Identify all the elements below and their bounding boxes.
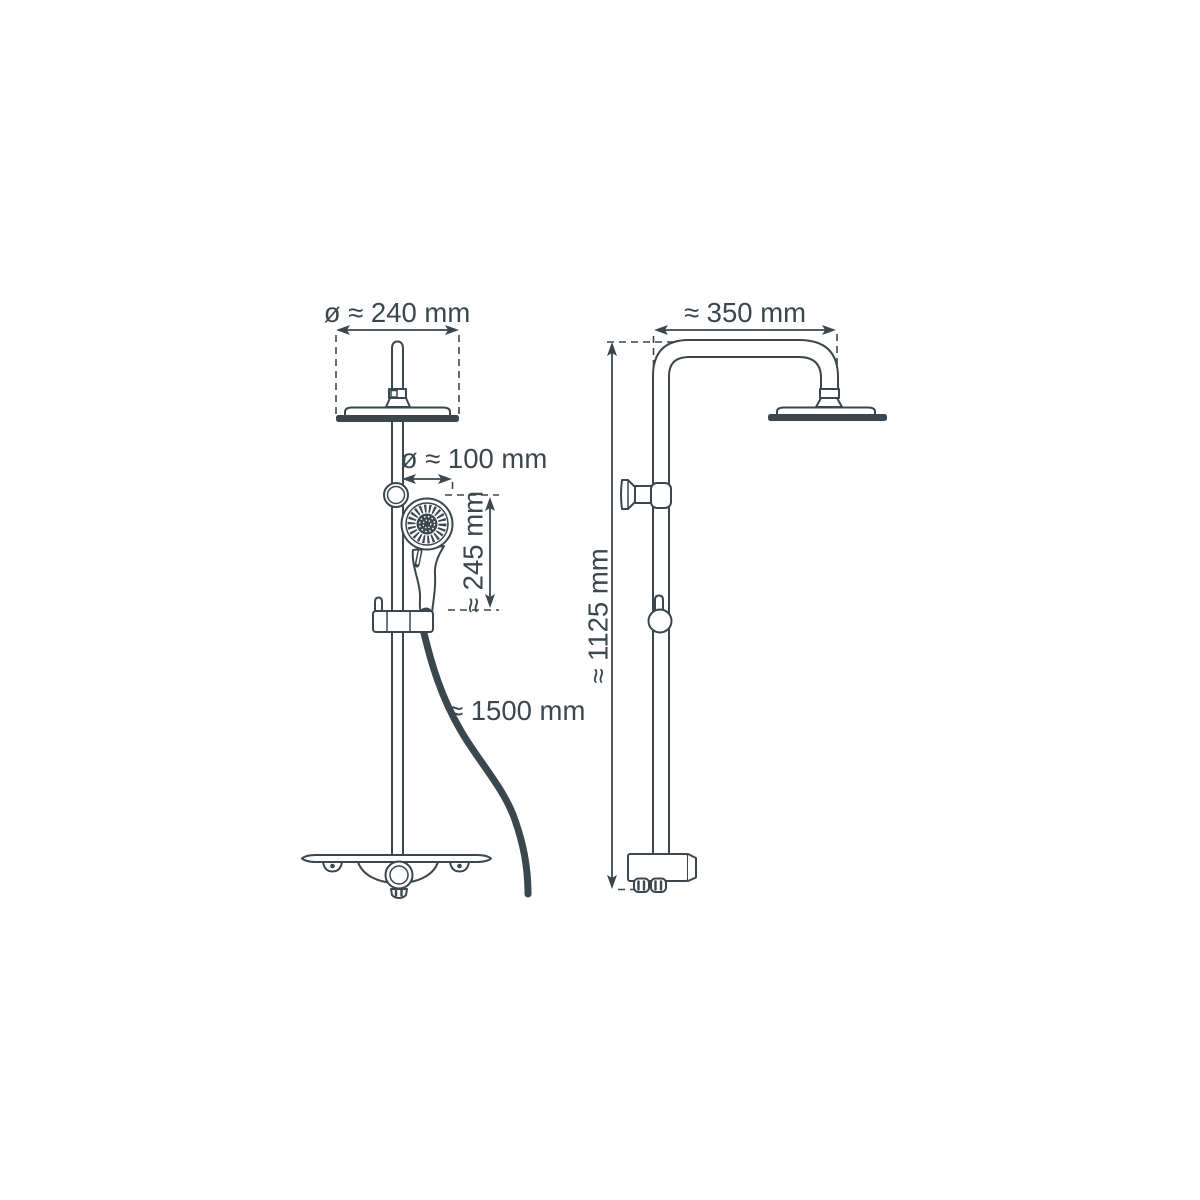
overhead-shower-side: [768, 389, 887, 421]
overhead-shower-front: [336, 342, 459, 423]
hose-length-label: ≈ 1500 mm: [448, 695, 585, 726]
dim-total-height: ≈ 1125 mm: [583, 342, 702, 890]
housing-side-face: [688, 854, 696, 881]
shelf: [302, 855, 491, 898]
dim-hand-diameter: ø ≈ 100 mm: [401, 443, 548, 493]
technical-drawing-page: ø ≈ 240 mm: [0, 0, 1200, 1200]
hand-shower-holder-ring: [384, 483, 408, 507]
wall-bracket-side: [621, 480, 671, 509]
shelf-nut: [391, 889, 407, 898]
head-cone: [386, 398, 410, 407]
hand-diameter-label: ø ≈ 100 mm: [401, 443, 548, 474]
head-disc-body: [345, 408, 450, 417]
head-disc-body: [777, 408, 875, 416]
hand-shower-mode-lever: [417, 551, 420, 565]
supply-nut: [634, 879, 649, 893]
shower-set-technical-drawing: ø ≈ 240 mm: [0, 0, 1200, 1200]
head-connector-nut: [820, 389, 839, 398]
ceiling-pipe: [392, 342, 403, 392]
hand-length-label: ≈ 245 mm: [458, 491, 489, 613]
hand-shower-head: [402, 499, 453, 550]
supply-nut: [651, 879, 666, 893]
arm-reach-label: ≈ 350 mm: [684, 297, 806, 328]
dim-hand-length: ≈ 245 mm: [445, 491, 499, 613]
front-view: ø ≈ 240 mm: [302, 297, 585, 898]
total-height-label: ≈ 1125 mm: [583, 548, 614, 683]
bracket-collar: [651, 483, 671, 508]
side-view: ≈ 350 mm ≈ 1125 mm: [583, 297, 888, 892]
mixer-housing-side: [628, 854, 696, 892]
head-cone: [816, 398, 842, 407]
bracket-pin: [375, 598, 382, 612]
overhead-diameter-label: ø ≈ 240 mm: [324, 297, 471, 328]
head-face-plate: [768, 414, 887, 421]
